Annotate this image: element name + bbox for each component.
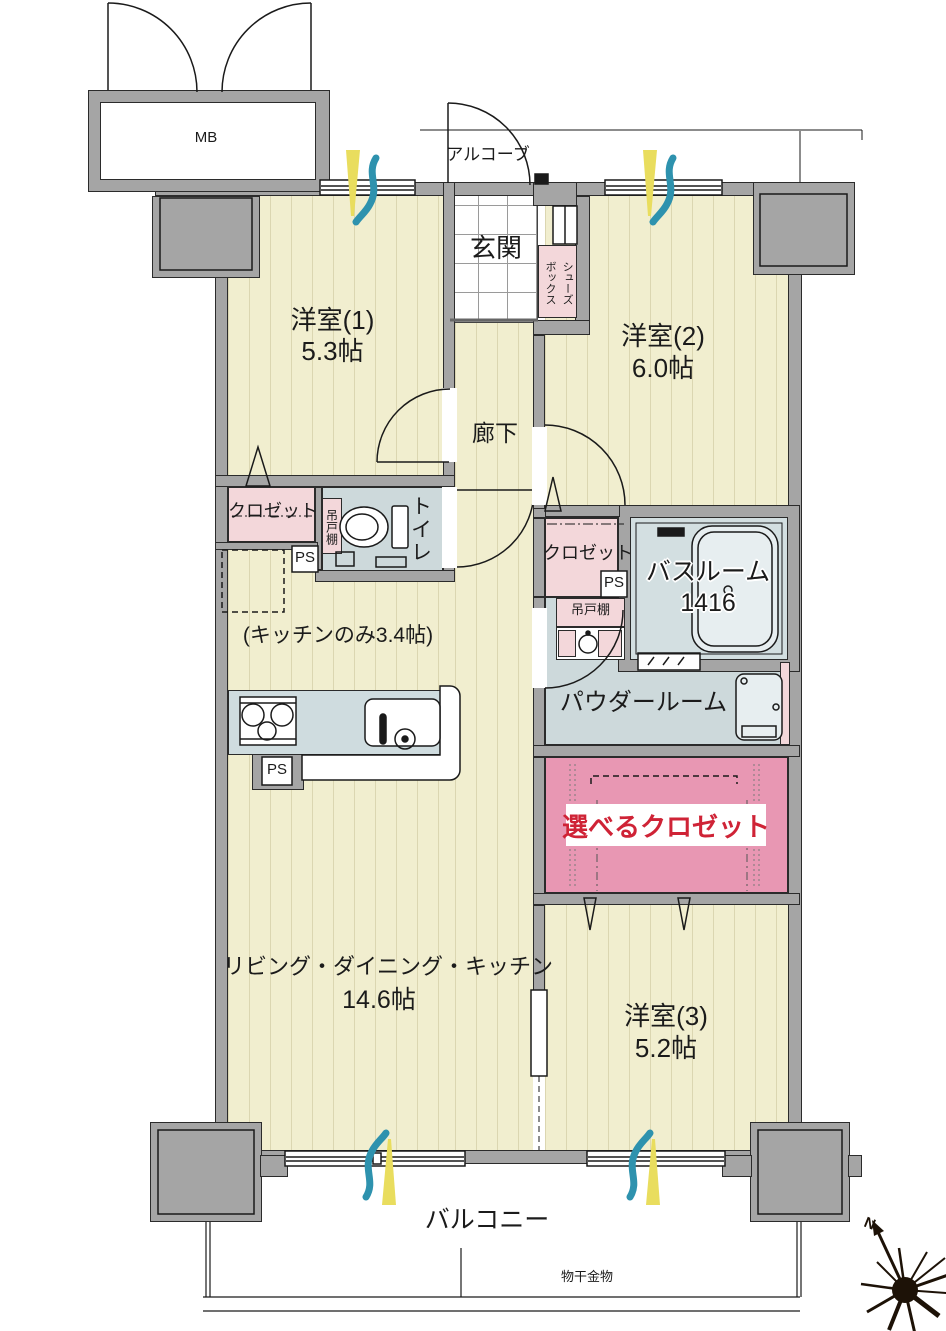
selectable-closet-label-box: 選べるクロゼット bbox=[566, 804, 766, 846]
wall bbox=[443, 182, 455, 582]
wall bbox=[228, 1150, 788, 1164]
mb-doors-icon bbox=[108, 3, 311, 92]
room3-name: 洋室(3) bbox=[596, 1002, 736, 1031]
wall bbox=[722, 1155, 752, 1177]
balcony-railing bbox=[203, 1222, 801, 1311]
wall bbox=[533, 757, 545, 905]
pillar-top-right bbox=[753, 182, 855, 275]
mb-label: MB bbox=[92, 130, 320, 147]
floor-plan: N 選べるクロゼット MB アルコーブ 玄関 シューズ ボックス 洋室(1) 5… bbox=[0, 0, 946, 1331]
compass-icon: N bbox=[861, 1214, 946, 1331]
hallway-label: 廊下 bbox=[458, 421, 532, 447]
wall bbox=[315, 570, 455, 582]
wall bbox=[533, 320, 590, 335]
balcony-label: バルコニー bbox=[423, 1206, 551, 1234]
selectable-closet-label: 選べるクロゼット bbox=[562, 807, 770, 844]
wall bbox=[788, 196, 802, 1150]
room1-name: 洋室(1) bbox=[250, 306, 415, 335]
vanity-cabinet bbox=[558, 630, 576, 657]
bathroom-size: 1416 bbox=[633, 589, 783, 617]
ps-label: PS bbox=[292, 550, 318, 567]
wall bbox=[848, 1155, 862, 1177]
room1-size: 5.3帖 bbox=[250, 337, 415, 366]
wall bbox=[575, 196, 590, 335]
closet-right-label: クロゼット bbox=[543, 543, 623, 563]
alcove-label: アルコーブ bbox=[432, 145, 544, 164]
bathroom-name: バスルーム bbox=[633, 558, 783, 586]
washer-pan-edge bbox=[780, 662, 790, 745]
wall bbox=[533, 182, 577, 206]
room2-size: 6.0帖 bbox=[583, 354, 743, 383]
wall bbox=[533, 597, 545, 757]
room3-size: 5.2帖 bbox=[596, 1034, 736, 1063]
compass-n-label: N bbox=[862, 1214, 878, 1234]
shoe-box-label: シューズ ボックス bbox=[541, 250, 575, 316]
wall bbox=[545, 505, 620, 517]
pillar-bottom-right bbox=[750, 1122, 850, 1222]
kitchen-note: (キッチンのみ3.4帖) bbox=[226, 624, 450, 648]
wall bbox=[260, 1155, 288, 1177]
kitchen-counter bbox=[228, 690, 443, 755]
pillar-bottom-left bbox=[150, 1122, 262, 1222]
genkan-label: 玄関 bbox=[455, 234, 537, 263]
vanity-cabinet bbox=[598, 630, 622, 657]
room2-name: 洋室(2) bbox=[583, 322, 743, 351]
wall bbox=[533, 335, 545, 513]
closet-left-label: クロゼット bbox=[228, 501, 315, 521]
powder-room-label: パウダールーム bbox=[551, 690, 736, 717]
ldk-name: リビング・ダイニング・キッチン bbox=[223, 955, 535, 980]
ps-label: PS bbox=[262, 762, 292, 779]
wall bbox=[533, 745, 800, 757]
toilet-cupboard-label: 吊戸棚 bbox=[324, 501, 337, 553]
pillar-top-left bbox=[152, 196, 260, 278]
ldk-size: 14.6帖 bbox=[223, 986, 535, 1014]
wall bbox=[533, 893, 800, 905]
toilet-label: トイレ bbox=[408, 489, 432, 569]
ps-label: PS bbox=[601, 575, 627, 592]
laundry-hw-label: 物干金物 bbox=[551, 1270, 623, 1285]
wall bbox=[215, 475, 455, 487]
powder-cupboard-label: 吊戸棚 bbox=[556, 603, 625, 618]
floor-hallway bbox=[455, 323, 533, 1150]
